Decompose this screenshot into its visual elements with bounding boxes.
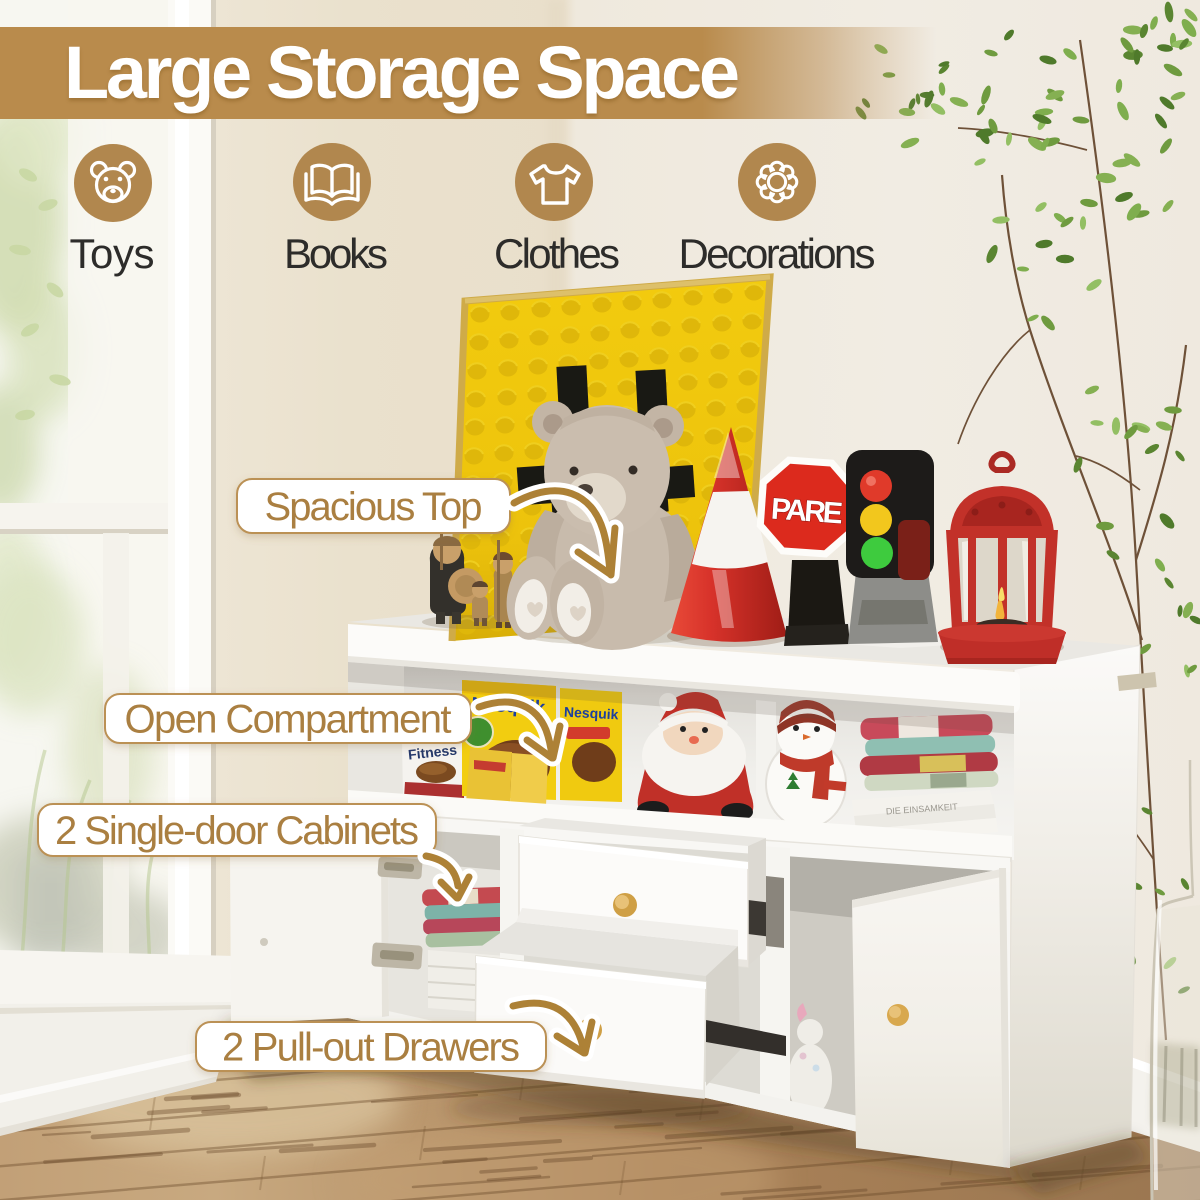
svg-text:Nesquik: Nesquik (564, 704, 619, 723)
svg-text:2 Single-door Cabinets: 2 Single-door Cabinets (55, 809, 419, 853)
svg-text:Large Storage Space: Large Storage Space (64, 31, 740, 114)
svg-text:PARE: PARE (770, 493, 844, 531)
svg-text:Decorations: Decorations (679, 230, 876, 277)
svg-text:2 Pull-out Drawers: 2 Pull-out Drawers (222, 1026, 520, 1070)
svg-text:Spacious Top: Spacious Top (265, 485, 483, 529)
svg-text:Clothes: Clothes (494, 230, 620, 277)
svg-text:Books: Books (284, 230, 388, 277)
svg-text:Open Compartment: Open Compartment (125, 698, 452, 742)
svg-text:Toys: Toys (70, 230, 155, 277)
